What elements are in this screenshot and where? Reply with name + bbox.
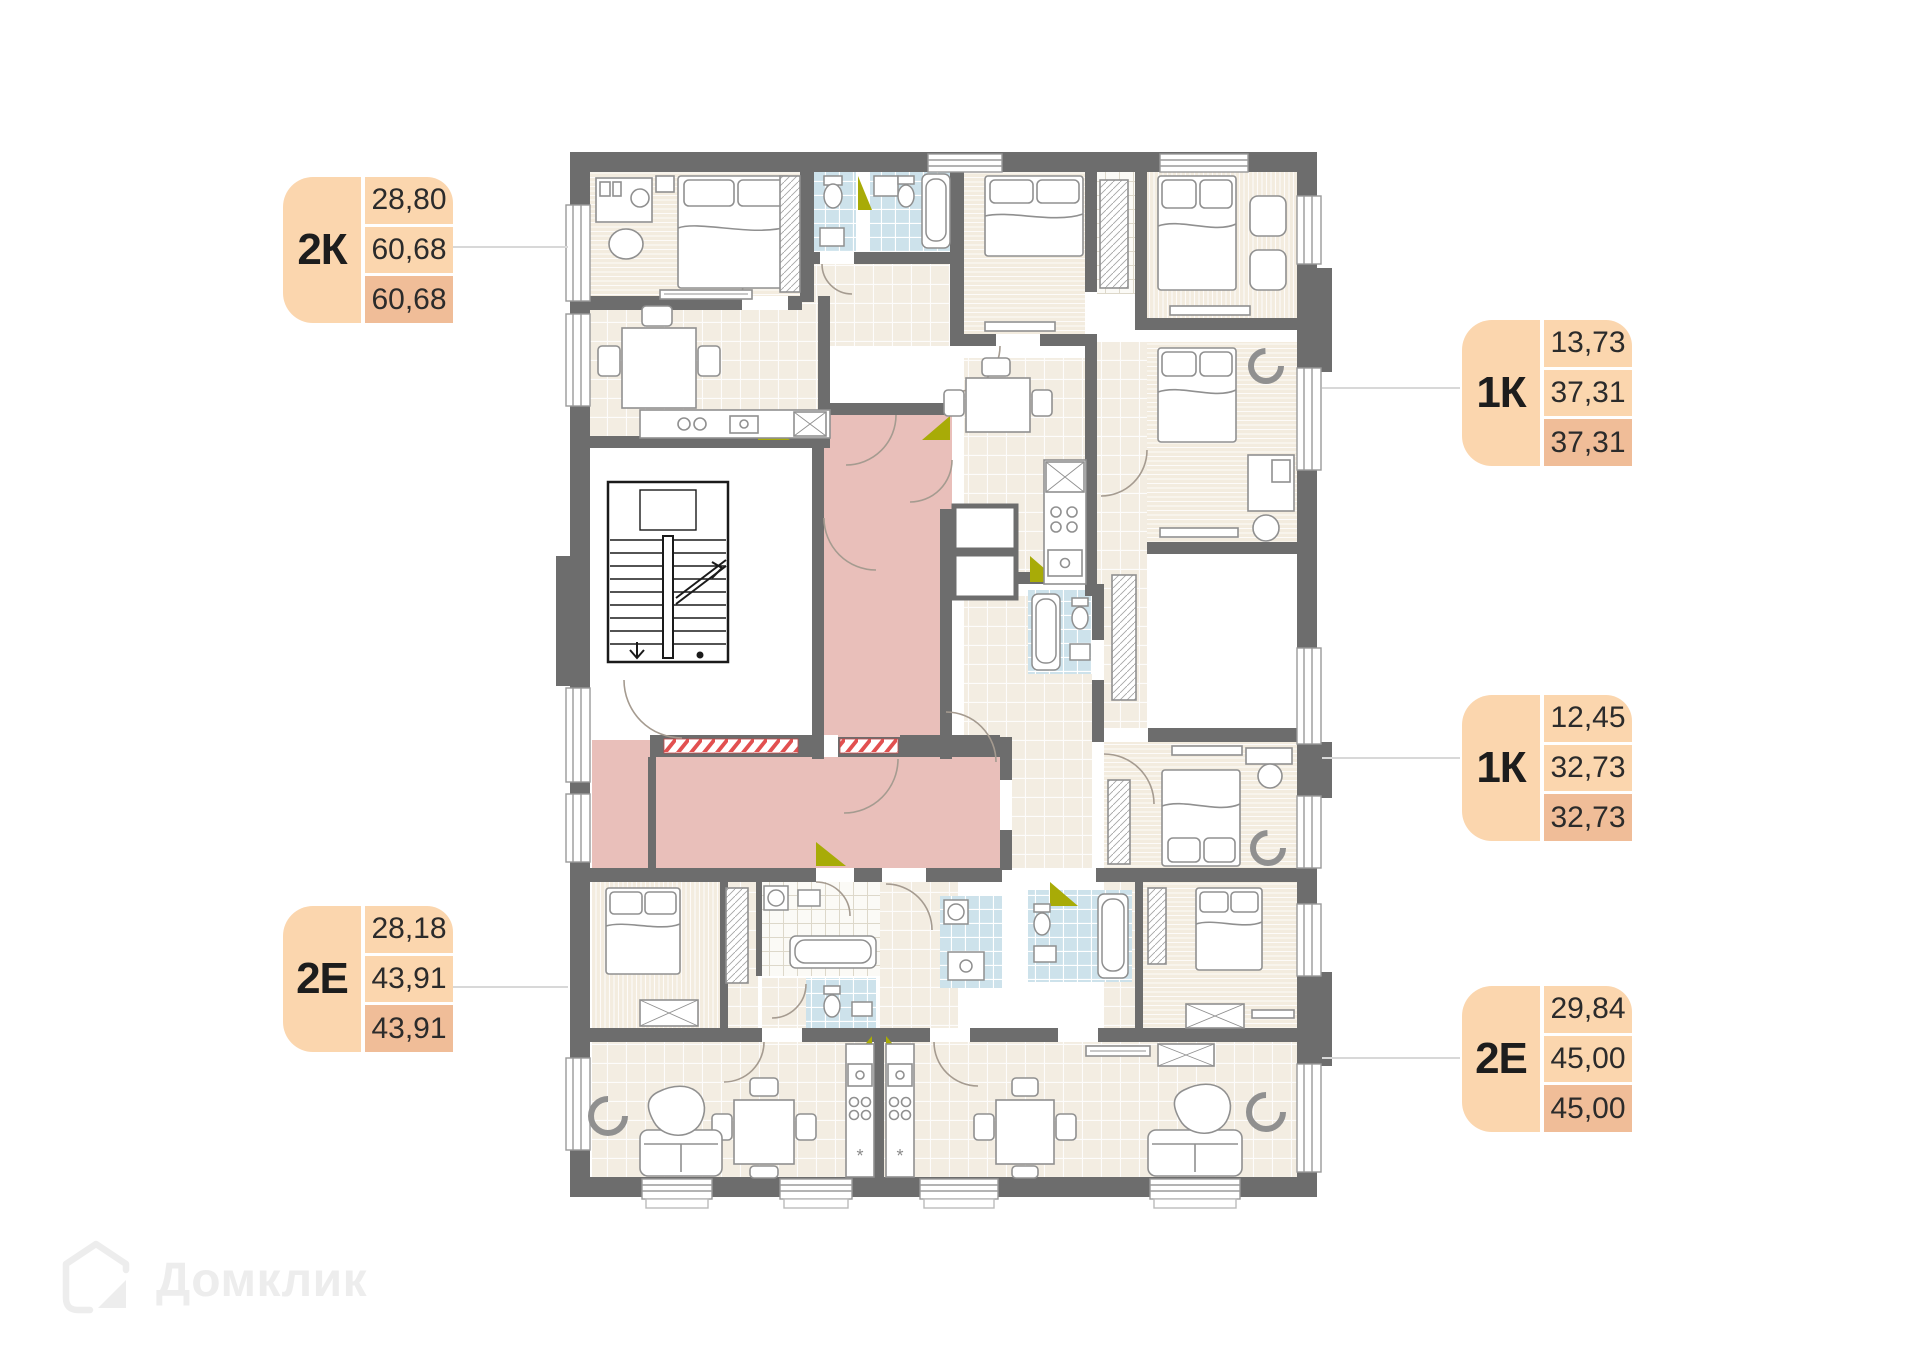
apartment-type: 2Е (283, 906, 361, 1052)
washer-icon (764, 886, 788, 910)
apartment-area-living: 29,84 (1544, 986, 1632, 1033)
apartment-area-highlight: 37,31 (1544, 419, 1632, 466)
apartment-type: 1К (1462, 320, 1540, 466)
stairwell (608, 482, 728, 662)
apartment-area-living: 28,18 (365, 906, 453, 953)
bathtub-icon (1032, 594, 1060, 670)
svg-text:*: * (896, 1146, 903, 1166)
sofa-icon (640, 1130, 722, 1176)
domclick-logo-icon (60, 1240, 140, 1320)
apartment-type: 1К (1462, 695, 1540, 841)
sink-icon (798, 890, 820, 906)
toilet-icon (824, 176, 842, 208)
kitchen-counter-icon (1044, 460, 1086, 584)
kitchen-counter-icon: * (846, 1044, 874, 1177)
toilet-icon (898, 176, 914, 207)
kitchen-counter-icon: * (886, 1044, 914, 1177)
bathtub-icon (1098, 894, 1128, 978)
sink-icon (820, 228, 844, 246)
apartment-area-highlight: 32,73 (1544, 794, 1632, 841)
kitchen-counter-icon (640, 410, 830, 438)
apartment-label-2e-right[interactable]: 2Е 29,84 45,00 45,00 (1462, 986, 1632, 1132)
apartment-area-total: 43,91 (365, 956, 453, 1003)
apartment-area-highlight: 45,00 (1544, 1085, 1632, 1132)
sink-icon (1034, 946, 1056, 962)
watermark-text: Домклик (156, 1253, 367, 1308)
apartment-area-total: 37,31 (1544, 370, 1632, 417)
bathtub-icon (922, 174, 950, 248)
fire-hatch-strips (664, 739, 898, 753)
apartment-label-1k-lower[interactable]: 1К 12,45 32,73 32,73 (1462, 695, 1632, 841)
apartment-area-living: 28,80 (365, 177, 453, 224)
svg-text:*: * (856, 1146, 863, 1166)
bathtub-icon (790, 936, 876, 968)
washer-icon (944, 900, 968, 924)
floorplan-page: { "watermark": { "text": "Домклик" }, "c… (0, 0, 1920, 1358)
bed-icon (606, 888, 680, 974)
apartment-label-2e-left[interactable]: 2Е 28,18 43,91 43,91 (283, 906, 453, 1052)
elevator-shafts (954, 506, 1016, 598)
sink-icon (852, 1002, 872, 1016)
apartment-label-1k-upper[interactable]: 1К 13,73 37,31 37,31 (1462, 320, 1632, 466)
apartment-type: 2К (283, 177, 361, 323)
apartment-area-highlight: 43,91 (365, 1005, 453, 1052)
domclick-watermark: Домклик (60, 1240, 367, 1320)
sofa-icon (1148, 1130, 1242, 1176)
toilet-icon (824, 986, 840, 1017)
apartment-type: 2Е (1462, 986, 1540, 1132)
apartment-label-2k[interactable]: 2К 28,80 60,68 60,68 (283, 177, 453, 323)
apartment-area-total: 60,68 (365, 227, 453, 274)
apartment-area-living: 12,45 (1544, 695, 1632, 742)
apartment-area-total: 45,00 (1544, 1036, 1632, 1083)
apartment-area-total: 32,73 (1544, 745, 1632, 792)
sink-icon (874, 176, 898, 196)
sink-icon (1070, 644, 1090, 660)
apartment-area-living: 13,73 (1544, 320, 1632, 367)
apartment-area-highlight: 60,68 (365, 276, 453, 323)
sink-icon (948, 952, 984, 980)
toilet-icon (1034, 904, 1050, 935)
toilet-icon (1072, 598, 1088, 629)
